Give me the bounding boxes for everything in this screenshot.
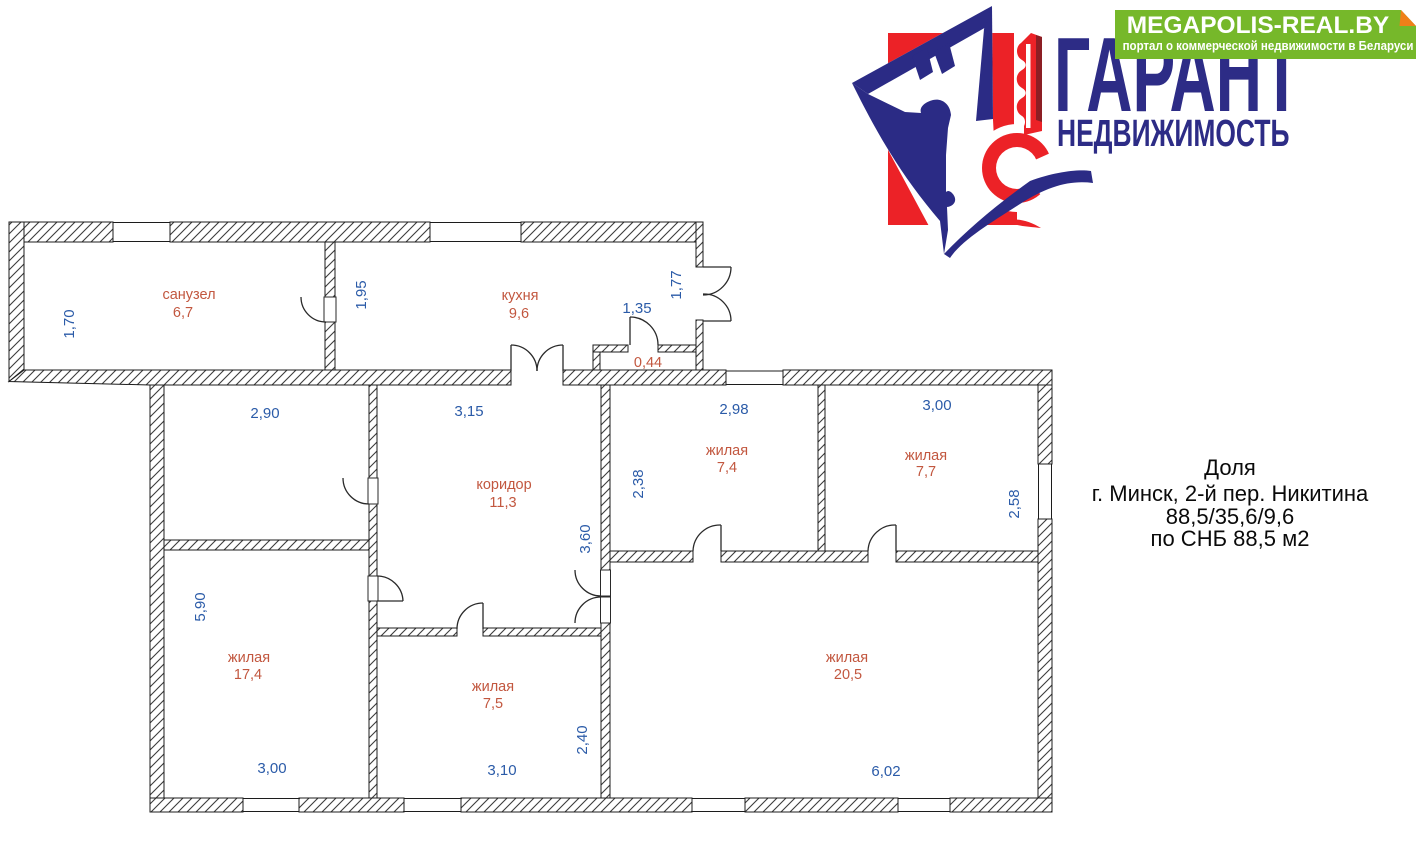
svg-text:2,98: 2,98	[719, 401, 748, 418]
svg-text:20,5: 20,5	[834, 667, 862, 683]
svg-text:7,5: 7,5	[483, 696, 503, 712]
svg-text:5,90: 5,90	[192, 592, 209, 621]
svg-text:жилая: жилая	[706, 443, 748, 459]
svg-text:жилая: жилая	[228, 650, 270, 666]
svg-text:3,60: 3,60	[577, 524, 594, 553]
svg-text:санузел: санузел	[162, 287, 215, 303]
svg-text:кухня: кухня	[502, 288, 539, 304]
svg-text:6,7: 6,7	[173, 305, 193, 321]
svg-text:2,90: 2,90	[250, 405, 279, 422]
svg-text:1,95: 1,95	[353, 280, 370, 309]
svg-text:0,44: 0,44	[634, 355, 662, 371]
svg-text:3,10: 3,10	[487, 762, 516, 779]
svg-text:9,6: 9,6	[509, 306, 529, 322]
svg-text:MEGAPOLIS-REAL.BY: MEGAPOLIS-REAL.BY	[1127, 12, 1389, 39]
svg-text:2,40: 2,40	[574, 725, 591, 754]
svg-text:коридор: коридор	[476, 477, 531, 493]
svg-text:3,00: 3,00	[257, 760, 286, 777]
svg-text:2,58: 2,58	[1006, 489, 1023, 518]
svg-text:7,7: 7,7	[916, 464, 936, 480]
svg-text:7,4: 7,4	[717, 460, 737, 476]
svg-text:г. Минск, 2-й пер. Никитина: г. Минск, 2-й пер. Никитина	[1092, 481, 1369, 506]
svg-text:1,35: 1,35	[622, 300, 651, 317]
svg-text:жилая: жилая	[472, 679, 514, 695]
svg-text:3,00: 3,00	[922, 397, 951, 414]
svg-text:Доля: Доля	[1204, 455, 1256, 480]
svg-text:1,70: 1,70	[61, 309, 78, 338]
svg-text:по СНБ 88,5 м2: по СНБ 88,5 м2	[1151, 526, 1310, 551]
svg-text:2,38: 2,38	[630, 469, 647, 498]
svg-text:портал о коммерческой недвижим: портал о коммерческой недвижимости в Бел…	[1123, 39, 1414, 54]
svg-text:6,02: 6,02	[871, 763, 900, 780]
svg-text:3,15: 3,15	[454, 403, 483, 420]
svg-text:жилая: жилая	[905, 448, 947, 464]
svg-text:17,4: 17,4	[234, 667, 262, 683]
svg-text:жилая: жилая	[826, 650, 868, 666]
svg-text:НЕДВИЖИМОСТЬ: НЕДВИЖИМОСТЬ	[1057, 111, 1289, 154]
svg-text:11,3: 11,3	[489, 495, 516, 511]
svg-text:1,77: 1,77	[668, 270, 685, 299]
